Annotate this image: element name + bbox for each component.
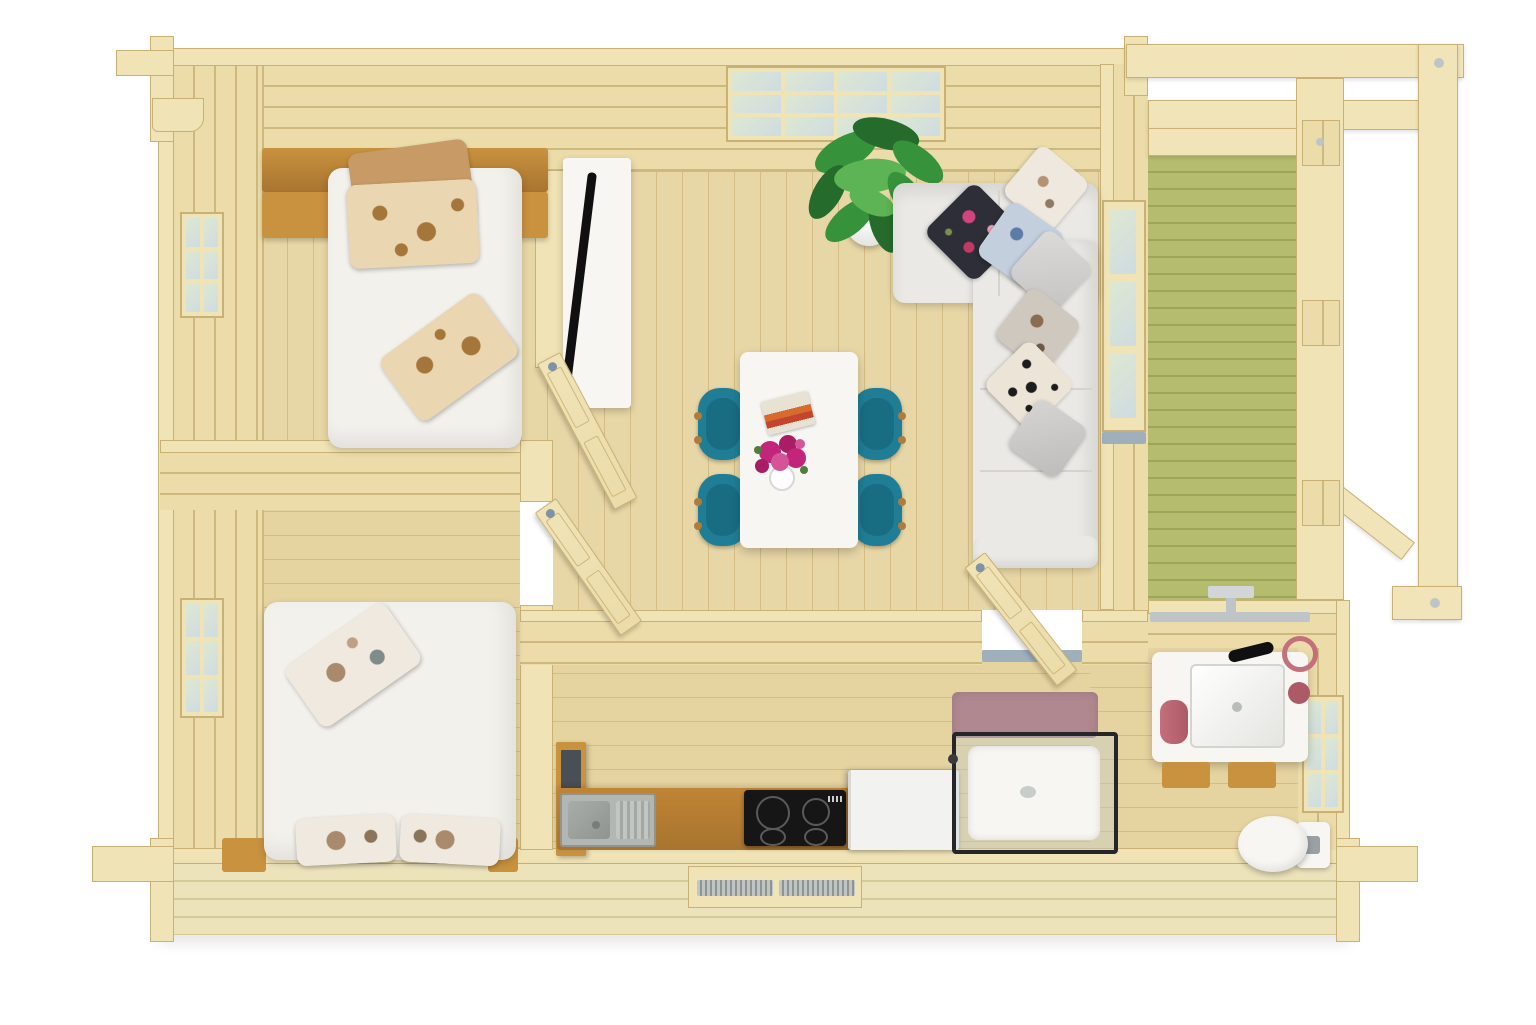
vanity-stool-right xyxy=(1228,762,1276,788)
window-pane xyxy=(204,251,218,280)
window-pane xyxy=(186,251,200,280)
wall-bedroom2-east-upper xyxy=(520,440,553,502)
window-pane xyxy=(1325,738,1338,771)
mirror-light-plate xyxy=(1208,586,1254,598)
railing-post-2 xyxy=(1302,300,1340,346)
window-pane xyxy=(204,218,218,247)
window-pane xyxy=(204,679,218,712)
chair-leg xyxy=(898,522,906,530)
window-pane xyxy=(204,283,218,312)
window-pane xyxy=(1308,701,1321,734)
wall-north-edge xyxy=(158,48,1148,66)
window-pane xyxy=(1308,738,1321,771)
pergola-screw-2 xyxy=(1316,138,1324,146)
corner-log-se-horizontal xyxy=(1336,846,1418,882)
pergola-screw-3 xyxy=(1430,598,1440,608)
wall-corridor-north-edge xyxy=(520,610,982,622)
window-west-bedroom2 xyxy=(180,598,224,718)
window-west-bedroom1 xyxy=(180,212,224,318)
vanity xyxy=(1152,652,1308,762)
tv-stand xyxy=(563,158,631,408)
door-veranda-glazed xyxy=(1102,200,1146,432)
window-pane xyxy=(785,72,834,91)
towel-roll xyxy=(1160,700,1188,744)
toilet-bowl xyxy=(1238,816,1308,872)
shower-hinge xyxy=(948,754,958,764)
wall-corridor-north-stub-edge xyxy=(1082,610,1148,622)
window-pane xyxy=(732,117,781,136)
sink-faucet xyxy=(592,821,600,829)
sink-drainer xyxy=(616,801,650,839)
sofa-seam-3 xyxy=(980,470,1092,472)
door-glass-pane xyxy=(1110,210,1136,274)
threshold-veranda-door xyxy=(1102,432,1146,444)
chair-leg xyxy=(898,498,906,506)
window-pane xyxy=(204,604,218,637)
bed-double-block-left xyxy=(222,838,266,872)
fridge xyxy=(848,770,959,850)
veranda-deck xyxy=(1148,156,1300,600)
window-pane xyxy=(1325,701,1338,734)
soap-jar xyxy=(1288,682,1310,704)
pergola-bottom-bracket xyxy=(1392,586,1462,620)
door-glass-pane xyxy=(1110,282,1136,346)
cooktop xyxy=(744,790,846,846)
window-pane xyxy=(186,218,200,247)
veranda-north-rail xyxy=(1148,128,1300,156)
window-pane xyxy=(186,604,200,637)
table-flowers xyxy=(736,420,826,500)
pergola-beam-second xyxy=(1148,100,1422,130)
window-pane xyxy=(732,72,781,91)
window-pane xyxy=(838,72,887,91)
chair-leg xyxy=(898,412,906,420)
window-pane xyxy=(1325,774,1338,807)
chair-seat xyxy=(706,398,740,450)
chair-seat xyxy=(860,484,894,536)
window-pane xyxy=(1308,774,1321,807)
dining-chair-ne[interactable] xyxy=(852,388,902,460)
towel-ring xyxy=(1282,636,1318,672)
dining-chair-se[interactable] xyxy=(852,474,902,546)
pillow-bottom-left xyxy=(295,813,397,866)
wall-corridor-north-face xyxy=(520,622,982,665)
pillow-bottom-right xyxy=(399,813,501,866)
cooktop-controls xyxy=(828,796,842,802)
window-pane xyxy=(186,283,200,312)
shower-cabin xyxy=(952,732,1118,854)
corner-log-nw-bracket xyxy=(152,98,204,132)
window-east-bathroom xyxy=(1302,695,1344,813)
chair-leg xyxy=(898,436,906,444)
mirror-light-bar xyxy=(1150,612,1310,622)
corner-log-nw-horizontal xyxy=(116,50,174,76)
pergola-beam-top xyxy=(1126,44,1464,78)
sink-bowl xyxy=(568,801,610,839)
burner xyxy=(804,828,828,846)
pergola-beam-east xyxy=(1418,44,1458,618)
burner xyxy=(802,798,830,826)
chair-leg xyxy=(694,522,702,530)
window-pane xyxy=(186,641,200,674)
door-glass-pane xyxy=(1110,354,1136,418)
chair-leg xyxy=(694,498,702,506)
chair-seat xyxy=(860,398,894,450)
nightstand-left xyxy=(262,192,332,238)
south-vent-right xyxy=(779,880,855,896)
chair-leg xyxy=(694,412,702,420)
mirror-light-stem xyxy=(1226,596,1236,612)
pillow-floral-head xyxy=(346,179,480,270)
pergola-screw-1 xyxy=(1434,58,1444,68)
window-pane xyxy=(186,679,200,712)
floorplan-render xyxy=(0,0,1536,1025)
window-pane xyxy=(204,641,218,674)
window-pane xyxy=(732,95,781,114)
burner xyxy=(760,828,786,846)
shower-drain xyxy=(1020,786,1036,798)
south-vent-left xyxy=(697,880,773,896)
chair-leg xyxy=(694,436,702,444)
kitchen-sink xyxy=(560,793,656,847)
basin-drain xyxy=(1232,702,1242,712)
railing-post-3 xyxy=(1302,480,1340,526)
vanity-stool-left xyxy=(1162,762,1210,788)
window-pane xyxy=(891,72,940,91)
corner-log-sw-horizontal xyxy=(92,846,174,882)
wall-bedroom1-south-face xyxy=(160,453,520,510)
burner xyxy=(756,796,790,830)
chair-seat xyxy=(706,484,740,536)
wall-corridor-north-stub-face xyxy=(1082,622,1148,665)
